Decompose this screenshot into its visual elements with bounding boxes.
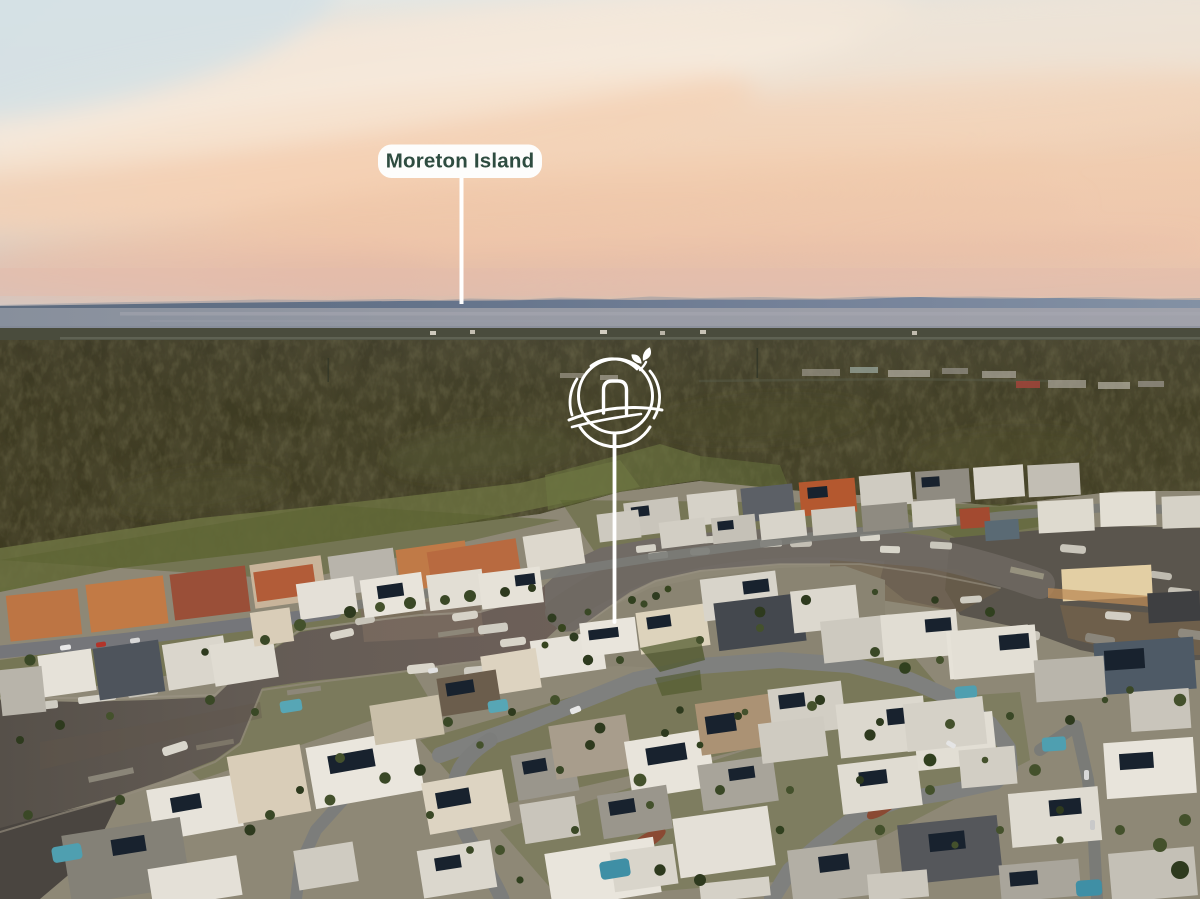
svg-text:Moreton Island: Moreton Island — [386, 150, 535, 173]
